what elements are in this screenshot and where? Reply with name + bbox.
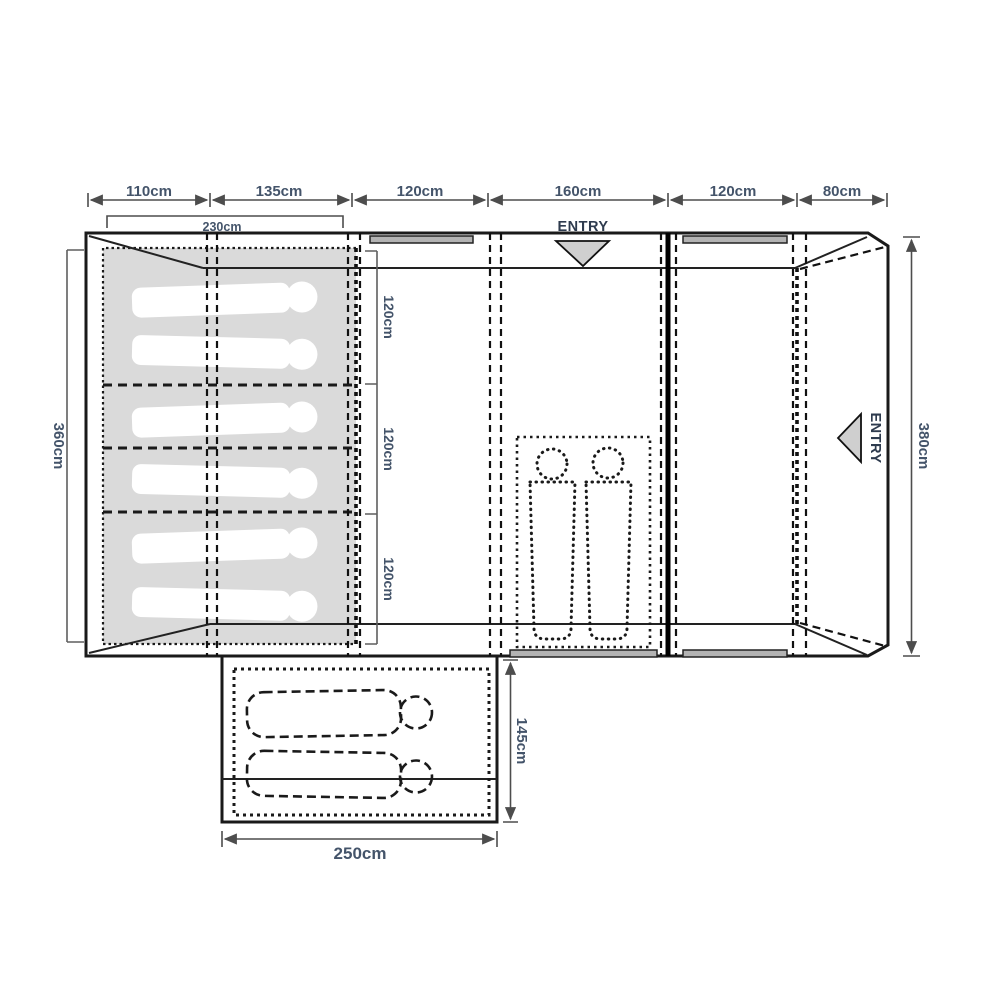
bedroom-bay-label-1: 120cm [381, 295, 397, 339]
right-depth-label: 380cm [915, 423, 932, 470]
annex-depth-label: 145cm [513, 718, 530, 765]
dim-label-120-front: 120cm [397, 183, 444, 200]
window-bar [370, 236, 473, 243]
dim-label-135: 135cm [256, 183, 303, 200]
window-bar [683, 236, 787, 243]
window-bar [510, 650, 657, 657]
dim-label-160: 160cm [555, 183, 602, 200]
left-depth-label: 360cm [50, 423, 67, 470]
bedroom-width-label: 230cm [203, 220, 242, 234]
dim-label-120-rear: 120cm [710, 183, 757, 200]
dim-label-80: 80cm [823, 183, 861, 200]
annex-width-label: 250cm [334, 844, 387, 863]
window-bar [683, 650, 787, 657]
floorplan-canvas: ENTRY ENTRY [0, 0, 1000, 1000]
front-entry-label: ENTRY [557, 219, 608, 235]
bedroom-bay-label-3: 120cm [381, 557, 397, 601]
tent-floorplan-diagram: ENTRY ENTRY [0, 0, 1000, 1000]
dim-label-110: 110cm [126, 183, 172, 200]
bedroom-area [103, 248, 356, 644]
side-entry-label: ENTRY [867, 412, 883, 463]
bedroom-bay-label-2: 120cm [381, 427, 397, 471]
